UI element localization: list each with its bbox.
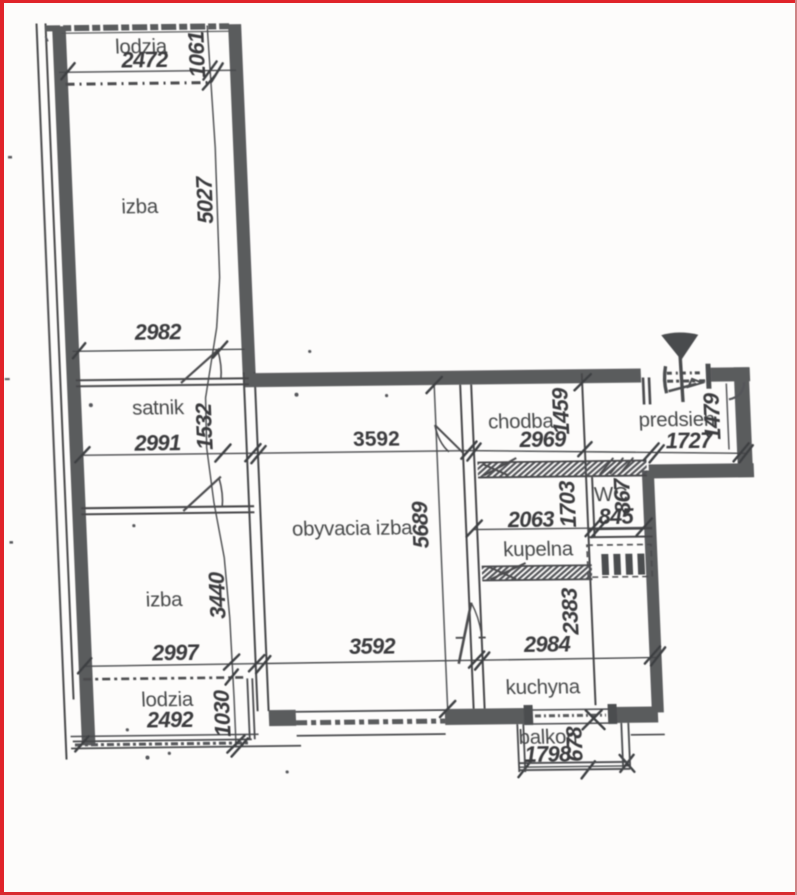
svg-text:1061: 1061 xyxy=(183,31,210,78)
svg-text:1703: 1703 xyxy=(554,481,581,528)
svg-text:3592: 3592 xyxy=(348,634,397,660)
svg-text:kupelna: kupelna xyxy=(503,537,575,561)
svg-text:1532: 1532 xyxy=(191,402,218,450)
svg-text:satnik: satnik xyxy=(132,396,186,420)
svg-text:867: 867 xyxy=(609,477,636,514)
svg-text:2383: 2383 xyxy=(557,588,584,636)
svg-text:2472: 2472 xyxy=(120,47,170,73)
svg-text:izba: izba xyxy=(145,588,183,611)
svg-text:3440: 3440 xyxy=(204,571,231,619)
svg-text:2063: 2063 xyxy=(506,507,555,533)
svg-text:2492: 2492 xyxy=(145,707,195,733)
svg-text:obyvacia izba: obyvacia izba xyxy=(291,516,413,540)
svg-text:5027: 5027 xyxy=(191,175,218,224)
svg-text:5689: 5689 xyxy=(407,501,434,549)
svg-text:678: 678 xyxy=(561,726,587,762)
svg-text:3592: 3592 xyxy=(353,427,401,451)
svg-text:1030: 1030 xyxy=(209,689,236,737)
svg-text:izba: izba xyxy=(121,195,159,218)
svg-text:1459: 1459 xyxy=(547,387,574,435)
svg-text:2997: 2997 xyxy=(151,640,202,666)
svg-text:2991: 2991 xyxy=(133,430,182,456)
svg-text:2984: 2984 xyxy=(522,631,571,657)
svg-text:2982: 2982 xyxy=(133,319,183,345)
svg-text:1479: 1479 xyxy=(699,392,726,440)
svg-text:kuchyna: kuchyna xyxy=(505,675,581,699)
